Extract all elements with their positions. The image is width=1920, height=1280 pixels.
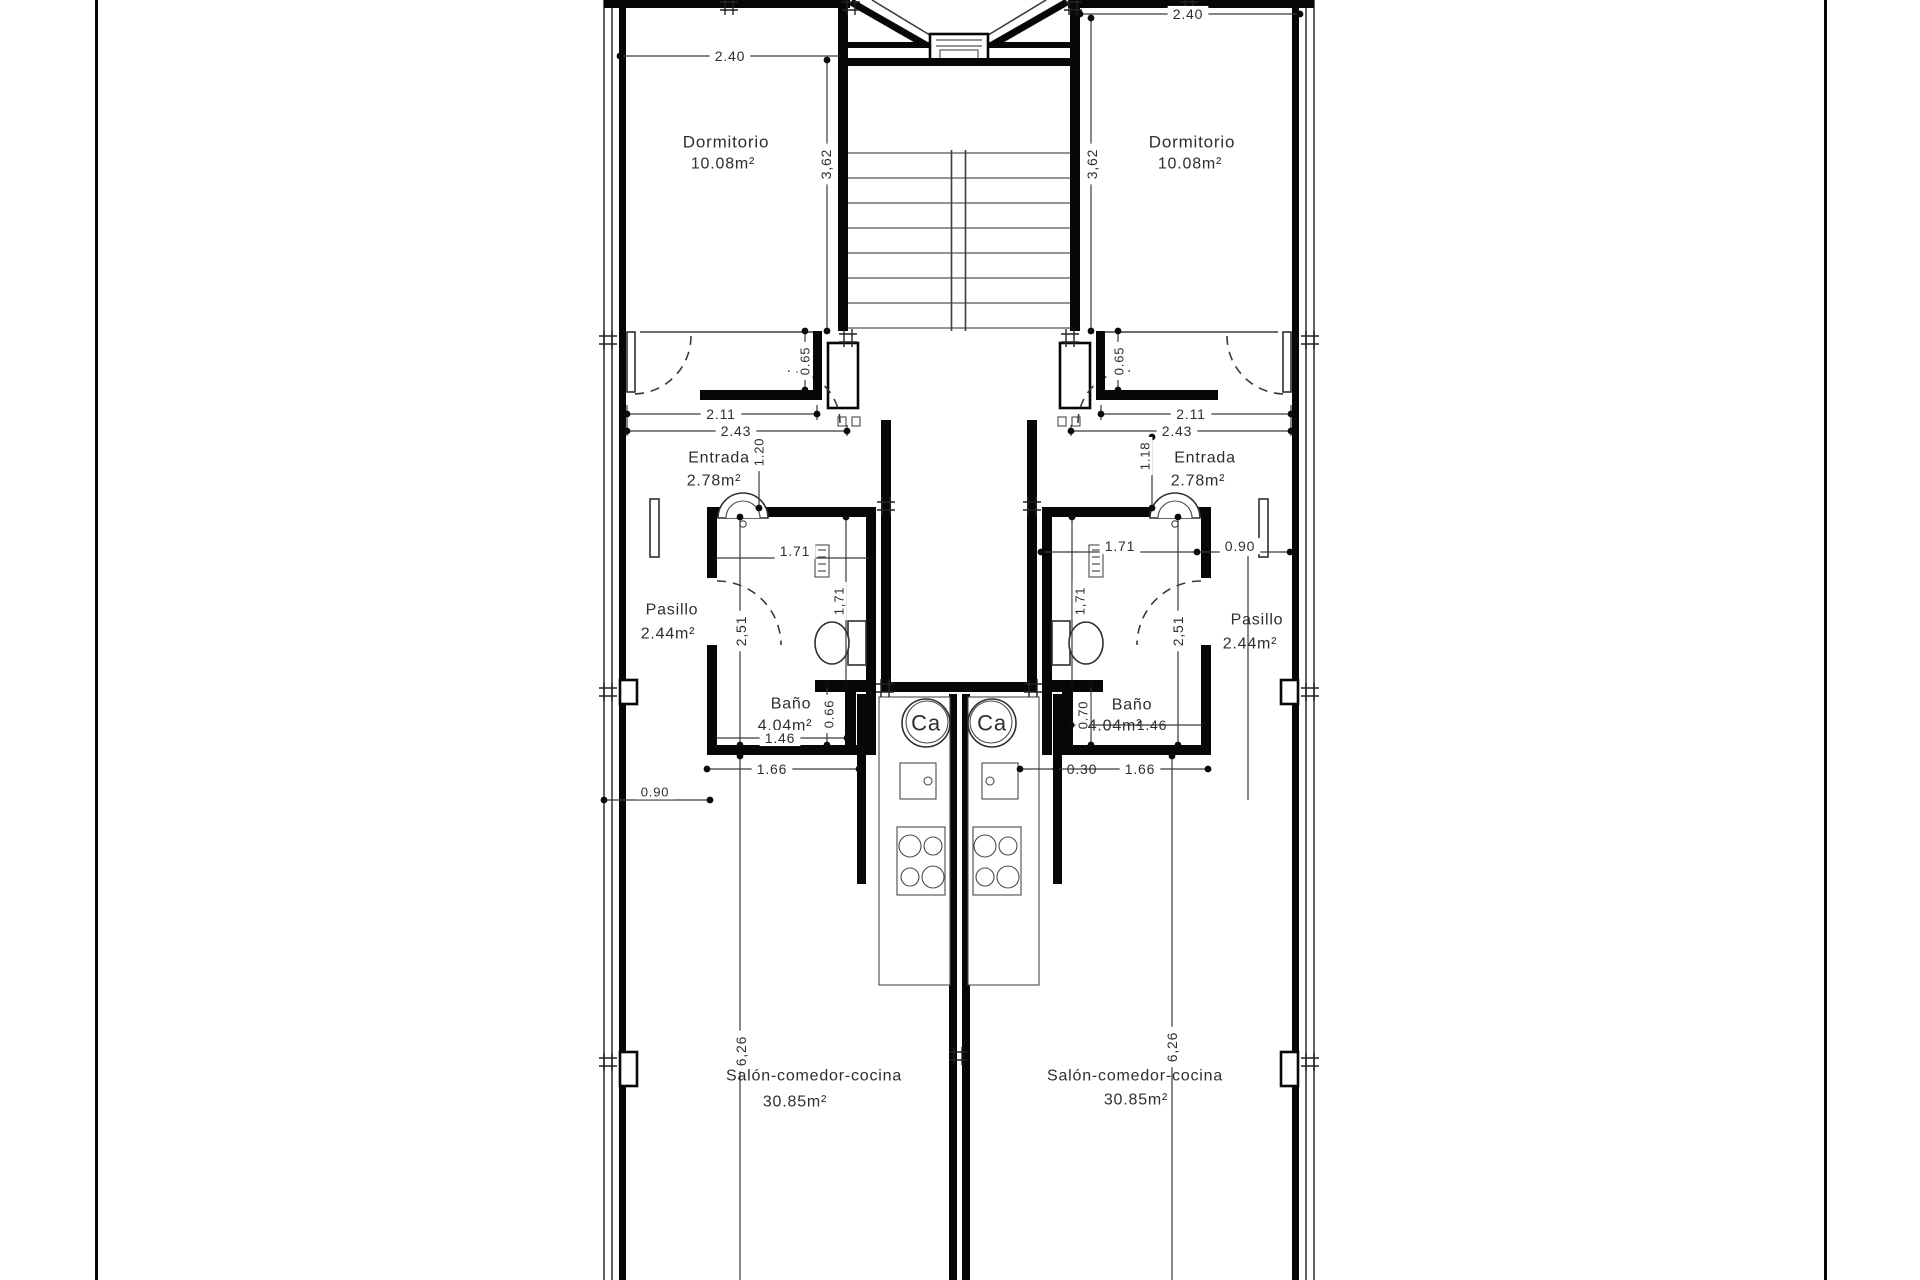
svg-text:Baño: Baño	[771, 696, 812, 713]
label-dim-118-r: 1.18	[1138, 437, 1153, 475]
label-pasillo-r-name: Pasillo	[1231, 612, 1284, 629]
label-dim-362-l: 3,62	[818, 144, 834, 185]
svg-text:2,51: 2,51	[1170, 616, 1186, 646]
svg-text:1,71: 1,71	[832, 587, 847, 616]
svg-text:1.66: 1.66	[1125, 761, 1155, 777]
label-bano-l-name: Baño	[771, 696, 812, 713]
label-salon-l-area: 30.85m²	[763, 1094, 827, 1111]
toilet-bowl	[1069, 622, 1103, 664]
svg-text:1.20: 1.20	[752, 438, 767, 467]
svg-text:2.78m²: 2.78m²	[687, 473, 742, 490]
toilet-tank	[1052, 621, 1070, 665]
label-dim-146-l: 1.46	[760, 730, 801, 746]
bath-door-swing	[1137, 581, 1201, 645]
wall-pier	[620, 680, 637, 704]
svg-text:6,26: 6,26	[733, 1036, 749, 1066]
svg-text:2.43: 2.43	[721, 423, 751, 439]
svg-text:1,71: 1,71	[1073, 587, 1088, 616]
kitchen-left	[879, 697, 950, 985]
label-entrada-l-name: Entrada	[688, 450, 750, 467]
label-dim-171v-l: 1,71	[832, 582, 847, 620]
svg-text:3,62: 3,62	[818, 149, 834, 179]
svg-text:1.46: 1.46	[765, 730, 795, 746]
svg-text:2.44m²: 2.44m²	[641, 626, 696, 643]
sheet-border	[95, 0, 1827, 1280]
label-dim-120-l: 1.20	[752, 433, 767, 471]
bedroom-door-leaf	[627, 332, 635, 392]
label-dim-243-l: 2.43	[716, 423, 757, 439]
label-entrada-l-area: 2.78m²	[687, 473, 742, 490]
toilet-tank	[848, 621, 866, 665]
svg-text:6,26: 6,26	[1164, 1032, 1180, 1062]
svg-text:2.11: 2.11	[1176, 406, 1205, 422]
label-entrada-r-area: 2.78m²	[1171, 473, 1226, 490]
svg-text:30.85m²: 30.85m²	[1104, 1092, 1168, 1109]
label-dim-240-l: 2.40	[710, 48, 751, 64]
door-leaf	[650, 499, 659, 557]
label-dim-171h-r: 1.71	[1100, 538, 1141, 554]
label-pasillo-l-name: Pasillo	[646, 602, 699, 619]
stair-niche	[828, 343, 858, 408]
label-dim-090-r: 0.90	[1220, 538, 1261, 554]
svg-text:Entrada: Entrada	[688, 450, 750, 467]
svg-text:1.66: 1.66	[757, 761, 787, 777]
svg-text:1.71: 1.71	[1105, 538, 1135, 554]
label-dim-030-r: 0.30	[1067, 761, 1097, 777]
label-dim-251-l: 2,51	[733, 611, 749, 652]
svg-text:0.90: 0.90	[641, 785, 670, 800]
svg-text:Entrada: Entrada	[1174, 450, 1236, 467]
label-dim-065-r: 0.65	[1112, 342, 1127, 380]
label-dim-211-r: 2.11	[1171, 406, 1212, 422]
svg-text:4.04m²: 4.04m²	[1088, 718, 1143, 735]
sink-faucet	[986, 777, 994, 785]
svg-text:0.66: 0.66	[822, 700, 837, 729]
floor-plan-canvas: Dormitorio10.08m²2.403,620.652.112.43Ent…	[0, 0, 1920, 1280]
svg-text:0.65: 0.65	[1112, 347, 1127, 376]
svg-text:0.90: 0.90	[1225, 538, 1255, 554]
wall-pier	[1281, 1052, 1298, 1086]
label-dorm-l-area: 10.08m²	[691, 156, 755, 173]
svg-text:1.46: 1.46	[1137, 717, 1167, 733]
label-dim-090-l: 0.90	[636, 785, 674, 800]
bedroom-door-leaf	[1283, 332, 1291, 392]
svg-text:Pasillo: Pasillo	[646, 602, 699, 619]
label-dim-240-r: 2.40	[1168, 6, 1209, 22]
label-dim-251-r: 2,51	[1170, 611, 1186, 652]
svg-text:Ca: Ca	[977, 711, 1007, 736]
bedroom-door-swing	[633, 336, 691, 394]
label-dorm-r-name: Dormitorio	[1149, 133, 1235, 152]
label-dim-626-r: 6,26	[1164, 1027, 1180, 1068]
label-dorm-r-area: 10.08m²	[1158, 156, 1222, 173]
label-entrada-r-name: Entrada	[1174, 450, 1236, 467]
svg-text:2.40: 2.40	[1173, 6, 1203, 22]
label-dim-065-l: 0.65	[798, 342, 813, 380]
bedroom-door-swing	[1227, 336, 1285, 394]
label-ca-l: Ca	[911, 711, 941, 736]
svg-text:2,51: 2,51	[733, 616, 749, 646]
label-dim-211-l: 2.11	[701, 406, 742, 422]
hall-walls	[788, 343, 1130, 1280]
label-ca-r: Ca	[977, 711, 1007, 736]
label-pasillo-r-area: 2.44m²	[1223, 636, 1278, 653]
svg-text:10.08m²: 10.08m²	[691, 156, 755, 173]
label-bano-r-name: Baño	[1112, 697, 1153, 714]
svg-text:Dormitorio: Dormitorio	[683, 133, 769, 152]
label-dim-243-r: 2.43	[1157, 423, 1198, 439]
svg-text:30.85m²: 30.85m²	[763, 1094, 827, 1111]
label-dim-166-r: 1.66	[1120, 761, 1161, 777]
label-dim-171h-l: 1.71	[775, 543, 816, 559]
svg-text:Baño: Baño	[1112, 697, 1153, 714]
label-dim-066-l: 0.66	[822, 695, 837, 733]
svg-text:2.40: 2.40	[715, 48, 745, 64]
svg-text:Salón-comedor-cocina: Salón-comedor-cocina	[1047, 1068, 1223, 1085]
svg-text:1.71: 1.71	[780, 543, 810, 559]
svg-text:Dormitorio: Dormitorio	[1149, 133, 1235, 152]
label-pasillo-l-area: 2.44m²	[641, 626, 696, 643]
svg-text:2.43: 2.43	[1162, 423, 1192, 439]
label-salon-l-name: Salón-comedor-cocina	[726, 1068, 902, 1085]
svg-text:2.11: 2.11	[706, 406, 735, 422]
label-salon-r-name: Salón-comedor-cocina	[1047, 1068, 1223, 1085]
svg-text:1.18: 1.18	[1138, 442, 1153, 471]
faucet	[1172, 521, 1178, 527]
door-jamb	[852, 417, 860, 426]
label-dim-146-r: 1.46	[1137, 717, 1167, 733]
svg-text:0.65: 0.65	[798, 347, 813, 376]
label-bano-r-area: 4.04m²	[1088, 718, 1143, 735]
label-dim-626-l: 6,26	[733, 1031, 749, 1072]
svg-text:Ca: Ca	[911, 711, 941, 736]
wall-pier	[1281, 680, 1298, 704]
stair-niche	[1060, 343, 1090, 408]
svg-text:2.44m²: 2.44m²	[1223, 636, 1278, 653]
svg-text:0.30: 0.30	[1067, 761, 1097, 777]
faucet	[740, 521, 746, 527]
sink-faucet	[924, 777, 932, 785]
svg-text:2.78m²: 2.78m²	[1171, 473, 1226, 490]
label-dim-166-l: 1.66	[752, 761, 793, 777]
stair-core	[838, 0, 1080, 331]
toilet-bowl	[815, 622, 849, 664]
svg-text:Pasillo: Pasillo	[1231, 612, 1284, 629]
label-dim-362-r: 3,62	[1084, 144, 1100, 185]
svg-text:3,62: 3,62	[1084, 149, 1100, 179]
label-salon-r-area: 30.85m²	[1104, 1092, 1168, 1109]
label-dorm-l-name: Dormitorio	[683, 133, 769, 152]
outer-walls	[604, 0, 1314, 1280]
door-jamb	[1058, 417, 1066, 426]
wall-pier	[620, 1052, 637, 1086]
kitchen-right	[968, 697, 1039, 985]
svg-text:10.08m²: 10.08m²	[1158, 156, 1222, 173]
stair-treads	[848, 150, 1070, 331]
label-dim-171v-r: 1,71	[1073, 582, 1088, 620]
svg-text:Salón-comedor-cocina: Salón-comedor-cocina	[726, 1068, 902, 1085]
